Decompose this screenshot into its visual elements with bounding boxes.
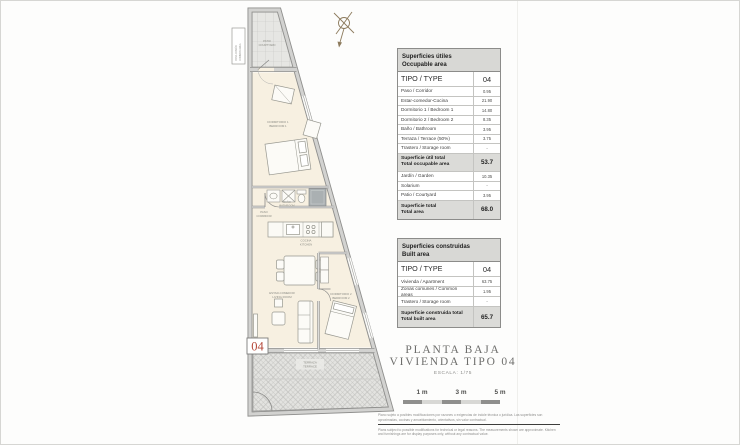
scale-note: ESCALA: 1/75: [368, 371, 538, 376]
total-row: Superficie construida totalTotal built a…: [398, 307, 500, 327]
table-row: Jardín / Garden 10.35: [398, 172, 500, 182]
table-row: Dormitorio 2 / Bedroom 2 8.35: [398, 116, 500, 126]
side-label-box: ZONA COMÚN COMMON AREA: [232, 28, 245, 64]
unit-number-badge: 04: [247, 338, 268, 354]
shower: [309, 189, 326, 207]
table-row: Patio / Courtyard 3.95: [398, 191, 500, 201]
room-label-living-2: LIVING ROOM: [272, 295, 292, 299]
table-row: Zonas comunes / Common areas 1.95: [398, 287, 500, 297]
toilet-tank: [297, 190, 306, 194]
scale-segment: [461, 400, 480, 404]
room-label-corridor-2: CORRIDOR: [256, 214, 271, 218]
armchair: [272, 312, 285, 325]
disclaimer-es: Plano sujeto a posibles modificaciones p…: [378, 413, 560, 422]
room-label-bathroom-2: BATHROOM: [279, 203, 295, 207]
room-label-bedroom1-2: BEDROOM 1: [269, 124, 287, 128]
vanity: [267, 190, 280, 202]
fridge: [322, 222, 334, 237]
unit-number: 04: [251, 340, 264, 354]
plan-subtitle: VIVIENDA TIPO 04: [368, 357, 538, 369]
closet: [321, 270, 329, 283]
table-row: Solarium -: [398, 182, 500, 192]
room-label-bedroom2-2: BEDROOM 2: [332, 296, 350, 300]
kitchen-counter: [268, 222, 333, 237]
scale-segment: [422, 400, 441, 404]
room-label-kitchen-2: KITCHEN: [300, 243, 312, 247]
room-label-terrace-2: TERRACE: [303, 365, 317, 369]
scale-label-1m: 1 m: [416, 389, 427, 396]
table-row: Estar-comedor-Cocina 21.90: [398, 97, 500, 107]
scale-segment: [403, 400, 422, 404]
scale-segment: [481, 400, 500, 404]
side-label-line2: COMMON AREA: [239, 43, 242, 61]
occupable-areas-table: Superficies útiles Occupable area TIPO /…: [397, 48, 501, 220]
sofa: [298, 301, 313, 343]
table-title-en: Occupable area: [402, 61, 496, 69]
occupable-table-header: Superficies útiles Occupable area: [398, 49, 500, 72]
scale-segment: [442, 400, 461, 404]
disclaimer-en: Plans subject to possible modifications …: [378, 428, 560, 437]
bedroom1-bed: [265, 138, 311, 175]
type-row: TIPO / TYPE 04: [398, 72, 500, 87]
total-row: Superficie útil totalTotal occupable are…: [398, 154, 500, 173]
plan-title: PLANTA BAJA: [368, 345, 538, 357]
side-label-line1: ZONA COMÚN: [235, 45, 238, 61]
disclaimer-block: Plano sujeto a posibles modificaciones p…: [378, 413, 560, 437]
built-areas-table: Superficies construidas Built area TIPO …: [397, 238, 501, 328]
title-block: PLANTA BAJA VIVIENDA TIPO 04 ESCALA: 1/7…: [368, 345, 538, 376]
table-row: Trastero / Storage room -: [398, 144, 500, 154]
table-title-es: Superficies construidas: [402, 243, 496, 251]
closet: [321, 257, 329, 270]
floor-plan-svg: 04 ZONA COMÚN COMMON AREA PATIO COURTYAR…: [1, 1, 740, 445]
scale-label-5m: 5 m: [494, 389, 505, 396]
table-row: Paso / Corridor 0.95: [398, 87, 500, 97]
table-row: Dormitorio 1 / Bedroom 1 14.80: [398, 106, 500, 116]
table-title-es: Superficies útiles: [402, 53, 496, 61]
built-table-header: Superficies construidas Built area: [398, 239, 500, 262]
table-title-en: Built area: [402, 251, 496, 259]
table-row: Baño / Bathroom 3.95: [398, 125, 500, 135]
table-row: Trastero / Storage room -: [398, 297, 500, 307]
disclaimer-divider: [378, 424, 560, 425]
scale-bar: [403, 400, 500, 404]
side-table: [275, 299, 283, 307]
type-row: TIPO / TYPE 04: [398, 262, 500, 277]
tv-unit: [254, 314, 258, 337]
room-label-patio-1: PATIO: [263, 39, 271, 43]
toilet: [298, 194, 305, 202]
room-label-patio-2: COURTYARD: [259, 43, 276, 47]
total-row: Superficie totalTotal area 68.0: [398, 201, 500, 220]
table-row: Terraza / Terrace (50%) 3.75: [398, 135, 500, 145]
scale-label-3m: 3 m: [455, 389, 466, 396]
compass-icon: [334, 12, 354, 48]
plan-sheet: 04 ZONA COMÚN COMMON AREA PATIO COURTYAR…: [0, 0, 740, 445]
